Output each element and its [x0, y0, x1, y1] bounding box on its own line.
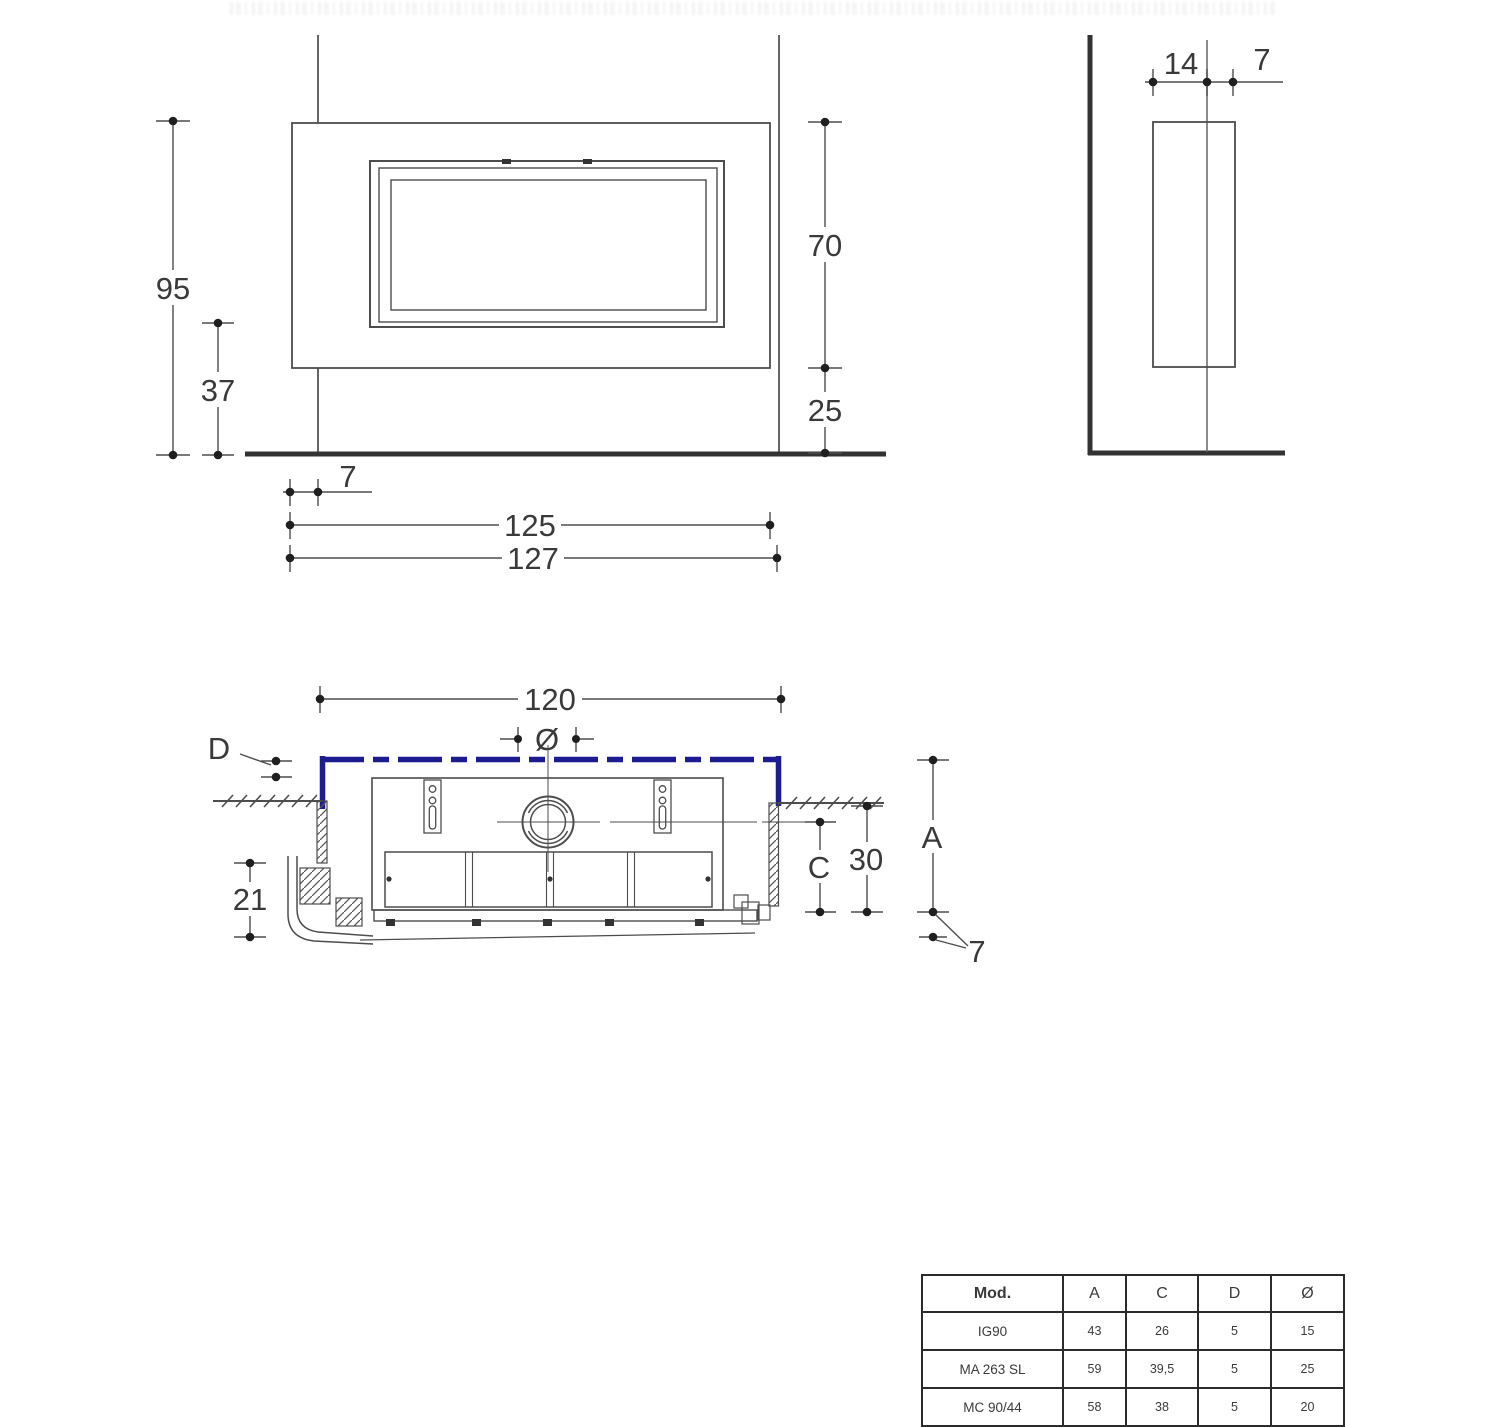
niche-wall-left [317, 801, 327, 863]
model-name: MA 263 SL [922, 1350, 1063, 1388]
value-d: 5 [1198, 1388, 1271, 1426]
dim-gap-d [240, 754, 292, 781]
table-row: MA 263 SL 59 39,5 5 25 [922, 1350, 1344, 1388]
table-row: MC 90/44 58 38 5 20 [922, 1388, 1344, 1426]
window-latch-right [583, 159, 592, 164]
bracket-right [654, 780, 671, 833]
model-name: MC 90/44 [922, 1388, 1063, 1426]
front-panel [292, 123, 770, 368]
value-diameter: 15 [1271, 1312, 1344, 1350]
dim-7-bottom-label: 7 [968, 934, 985, 969]
side-insert-body [1153, 122, 1235, 367]
window-frame-mid [379, 168, 717, 322]
col-header-c: C [1126, 1275, 1198, 1312]
dim-120-label: 120 [524, 682, 576, 717]
dim-70-label: 70 [808, 228, 842, 263]
front-view: 95 37 70 [154, 35, 886, 576]
hood-profile-left [288, 856, 373, 944]
dim-14-label: 14 [1164, 46, 1198, 81]
table-row: IG90 43 26 5 15 [922, 1312, 1344, 1350]
dim-95-label: 95 [156, 271, 190, 306]
dim-37-label: 37 [201, 373, 235, 408]
dim-d-label: D [208, 731, 230, 766]
niche-wall-right [769, 803, 779, 906]
value-a: 59 [1063, 1350, 1126, 1388]
value-d: 5 [1198, 1350, 1271, 1388]
col-header-diameter: Ø [1271, 1275, 1344, 1312]
dim-125-label: 125 [504, 508, 556, 543]
fireplace-installation-drawing: 95 37 70 [0, 0, 1500, 1427]
niche-wall-right-foot [758, 905, 770, 920]
dim-c-label: C [808, 850, 830, 885]
flue-collar [497, 745, 832, 872]
value-c: 39,5 [1126, 1350, 1198, 1388]
spec-table-header-row: Mod. A C D Ø [922, 1275, 1344, 1312]
dim-side-offset [283, 479, 372, 506]
dim-25-label: 25 [808, 393, 842, 428]
model-name: IG90 [922, 1312, 1063, 1350]
dim-30-label: 30 [849, 842, 883, 877]
dim-a-label: A [922, 820, 943, 855]
dim-bottom-offset [919, 915, 968, 948]
dim-diameter-label: Ø [535, 722, 559, 757]
value-c: 38 [1126, 1388, 1198, 1426]
bracket-left [424, 780, 441, 833]
spec-table: Mod. A C D Ø IG90 43 26 5 15 MA 263 SL 5 [921, 1274, 1345, 1427]
col-header-d: D [1198, 1275, 1271, 1312]
plan-view: 120 Ø [208, 682, 986, 969]
col-header-a: A [1063, 1275, 1126, 1312]
window-latch-left [502, 159, 511, 164]
dim-7-offset-label: 7 [339, 459, 356, 494]
dim-127-label: 127 [507, 541, 559, 576]
value-d: 5 [1198, 1312, 1271, 1350]
value-a: 58 [1063, 1388, 1126, 1426]
wall-section-left [213, 795, 321, 807]
window-frame-outer [370, 161, 724, 327]
col-header-mod: Mod. [922, 1275, 1063, 1312]
scan-artifact [230, 2, 1275, 15]
bottom-band [360, 910, 757, 940]
dim-7-side-label: 7 [1253, 42, 1270, 77]
value-diameter: 20 [1271, 1388, 1344, 1426]
window-glass [391, 180, 706, 310]
value-c: 26 [1126, 1312, 1198, 1350]
value-diameter: 25 [1271, 1350, 1344, 1388]
technical-drawing-page: 95 37 70 [0, 0, 1500, 1427]
dim-21-label: 21 [233, 882, 267, 917]
value-a: 43 [1063, 1312, 1126, 1350]
side-view: 14 7 [1088, 35, 1285, 455]
